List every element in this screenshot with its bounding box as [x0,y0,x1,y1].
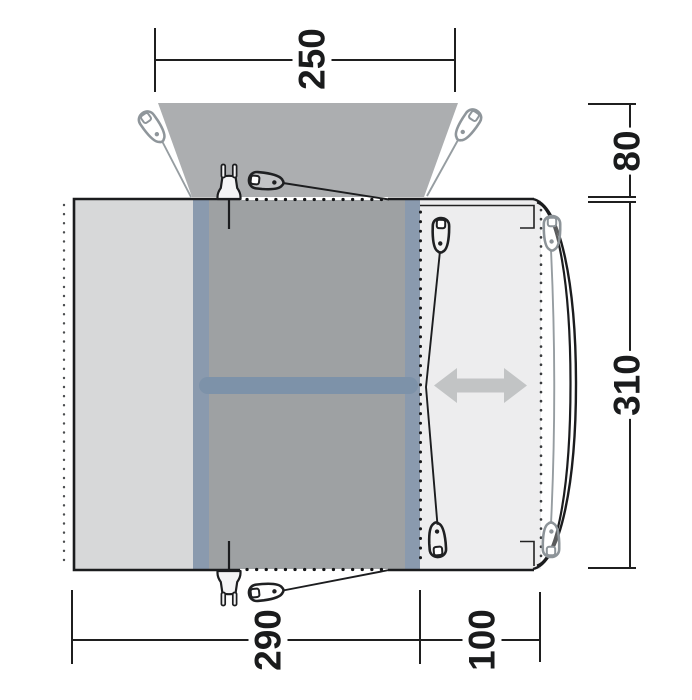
peg-cabin-top-left-icon [432,218,449,253]
peg-top-right-icon [451,106,484,144]
dimension-label-canopy-width: 250 [293,25,332,93]
tent-floorplan-diagram: 250 80 310 290 100 [0,0,692,700]
dimension-label-front-width: 290 [249,606,288,674]
canopy-area [158,103,458,197]
dimension-label-canopy-depth: 80 [608,127,647,174]
dimension-label-body-depth: 310 [608,351,647,419]
divider-bar [199,377,418,394]
peg-cabin-top-right-icon [544,216,560,251]
left-room-area [74,200,194,569]
peg-cabin-bottom-right-icon [543,522,559,557]
peg-front-bottom-icon [248,582,284,602]
dimension-label-cabin-width: 100 [463,606,502,674]
floorplan-drawing [0,0,692,700]
